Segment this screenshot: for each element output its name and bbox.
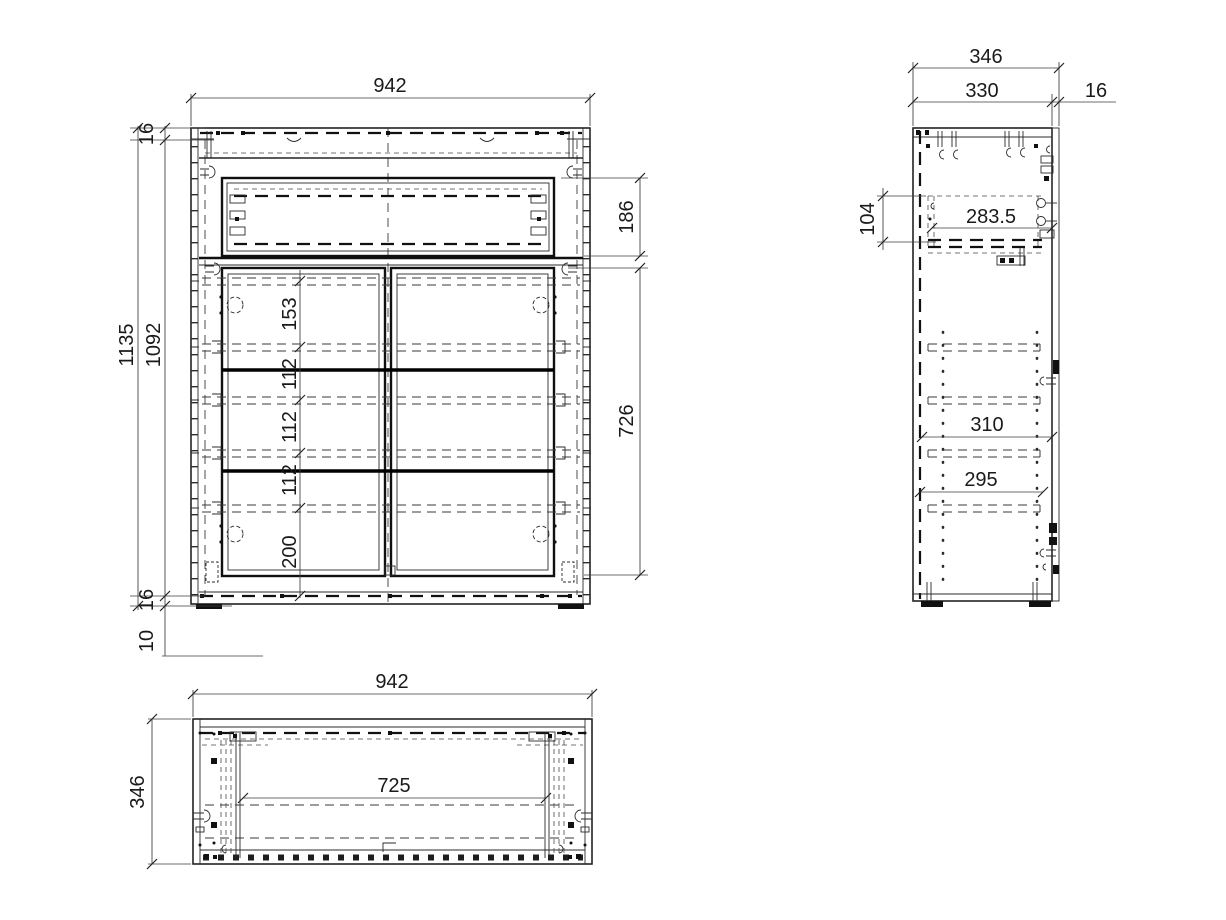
- dim-front-row-spacing-1: 153: [279, 297, 301, 330]
- dim-front-bottom-panel: 16: [136, 589, 158, 611]
- dim-front-row-spacing-4: 112: [279, 464, 301, 496]
- dim-front-drawer-height: 186: [616, 200, 638, 233]
- side-foot-back: [921, 601, 943, 607]
- dim-side-drawer-depth: 283.5: [966, 206, 1016, 228]
- dim-front-width: 942: [373, 75, 406, 97]
- side-carcass-outline: [913, 128, 1059, 601]
- side-feet: [921, 582, 1051, 607]
- drawer-slide-left: [230, 195, 245, 235]
- dim-front-foot-height: 10: [136, 630, 158, 652]
- dim-side-front-thickness: 16: [1085, 80, 1107, 102]
- technical-drawing-page: 942 16 1135 1092 153 112 112 112 200 186…: [0, 0, 1226, 920]
- dim-side-shelf-depth-lower: 295: [964, 469, 997, 491]
- top-dimensions: 942 346 725: [127, 671, 597, 869]
- front-drawer: [199, 178, 583, 275]
- top-center-fitting: [383, 843, 396, 852]
- side-view: 346 330 16 104 283.5 310 295: [857, 46, 1116, 607]
- dim-front-top-panel: 16: [136, 123, 158, 145]
- top-view: 942 346 725: [127, 671, 597, 869]
- side-shelf-positions: [928, 332, 1040, 588]
- side-top-fittings: [916, 130, 1038, 159]
- dim-front-inner-height: 1092: [143, 323, 165, 368]
- side-foot-front: [1029, 601, 1051, 607]
- front-foot-left: [196, 604, 222, 609]
- side-dimensions: 346 330 16 104 283.5 310 295: [857, 46, 1116, 497]
- dim-top-inner-width: 725: [377, 775, 410, 797]
- front-foot-right: [558, 604, 584, 609]
- drawer-slide-right: [531, 195, 546, 235]
- top-slide-cluster-right: [529, 732, 592, 860]
- dim-front-row-spacing-5: 200: [279, 535, 301, 568]
- dim-side-shelf-depth-upper: 310: [970, 414, 1003, 436]
- dim-top-width: 942: [375, 671, 408, 693]
- dim-front-row-spacing-3: 112: [279, 411, 301, 443]
- dim-side-carcass-depth: 330: [965, 80, 998, 102]
- front-view: 942 16 1135 1092 153 112 112 112 200 186…: [116, 75, 648, 656]
- dim-top-depth: 346: [127, 775, 149, 808]
- dim-front-total-height: 1135: [116, 323, 138, 366]
- cabinet-drawing-canvas: 942 16 1135 1092 153 112 112 112 200 186…: [0, 0, 1226, 920]
- dim-front-row-spacing-2: 112: [279, 358, 301, 390]
- front-top-panel: [199, 131, 583, 178]
- dim-side-total-depth: 346: [969, 46, 1002, 68]
- dim-front-door-height: 726: [616, 404, 638, 437]
- dim-side-drawer-side-height: 104: [857, 202, 879, 235]
